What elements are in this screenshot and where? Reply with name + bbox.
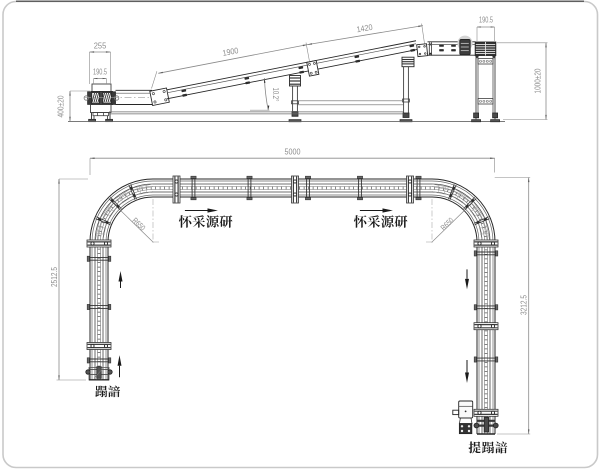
svg-text:3212.5: 3212.5 (519, 295, 529, 315)
svg-text:10.2°: 10.2° (271, 88, 280, 102)
svg-text:2512.5: 2512.5 (49, 267, 59, 287)
svg-text:190.5: 190.5 (93, 67, 107, 77)
svg-text:400±20: 400±20 (56, 95, 66, 117)
svg-text:1000±20: 1000±20 (532, 68, 542, 93)
svg-text:190.5: 190.5 (479, 15, 493, 25)
svg-text:5000: 5000 (285, 147, 301, 157)
svg-text:255: 255 (94, 41, 107, 51)
